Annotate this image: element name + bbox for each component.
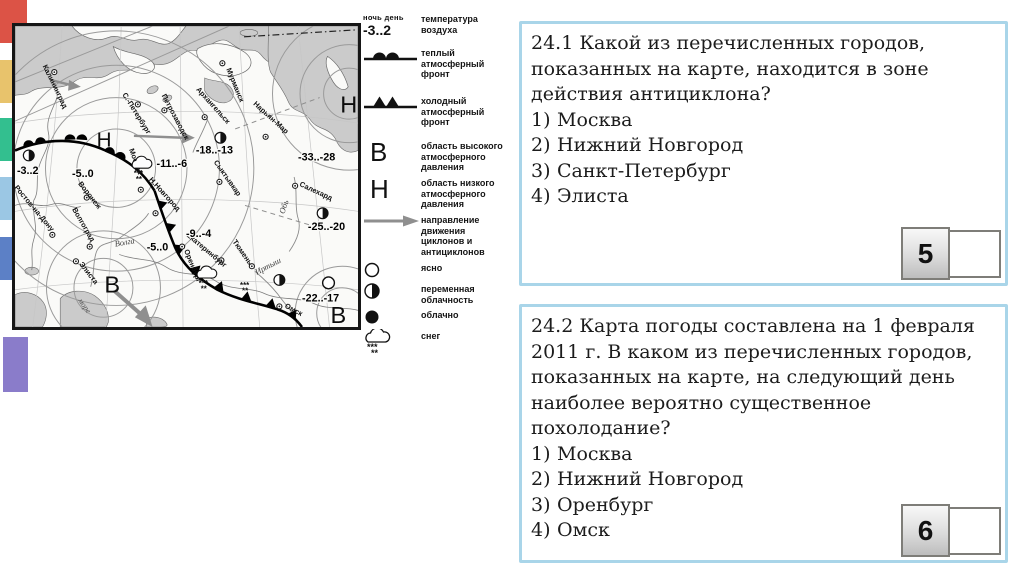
snow-symbol: ** — [201, 285, 208, 294]
decor-square — [3, 337, 28, 392]
pressure-letter: Н — [340, 91, 357, 117]
legend-label: холодныйатмосферныйфронт — [421, 95, 484, 128]
answer-option: 2)Нижний Новгород — [531, 133, 999, 159]
question-text-line: 24.2 Карта погоды составлена на 1 феврал… — [531, 314, 999, 340]
answer-option: 3)Санкт-Петербург — [531, 159, 999, 185]
option-text: Москва — [557, 109, 632, 131]
city-dot-center — [294, 185, 296, 187]
legend-row: теплыйатмосферныйфронт — [361, 47, 515, 87]
temp-sample: ночь день-3..2 — [361, 13, 421, 38]
city-dot-center — [155, 212, 157, 214]
city-dot-center — [219, 181, 221, 183]
legend-label: снег — [421, 329, 440, 342]
temperature-label: -25..-20 — [308, 221, 345, 233]
pressure-letter: В — [104, 272, 120, 298]
legend-label: облачно — [421, 308, 459, 321]
option-number: 2) — [531, 467, 557, 493]
legend-row: холодныйатмосферныйфронт — [361, 95, 515, 135]
city-dot-center — [140, 189, 142, 191]
option-text: Омск — [557, 519, 610, 541]
option-number: 4) — [531, 184, 557, 210]
option-text: Нижний Новгород — [557, 134, 743, 156]
temperature-label: -18..-13 — [196, 144, 233, 156]
answer-option: 4)Элиста — [531, 184, 999, 210]
question-text-line: действия антициклона? — [531, 82, 999, 108]
temperature-label: -9..-4 — [186, 228, 211, 240]
temperature-label: -5..0 — [147, 242, 169, 254]
pressure-letter: В — [330, 302, 346, 327]
high-pressure-letter: В — [361, 140, 421, 164]
answer-option: 1)Москва — [531, 442, 999, 468]
snow-symbol: ** — [242, 287, 249, 296]
legend-row: облачно — [361, 308, 515, 326]
legend-row: переменнаяоблачность — [361, 282, 515, 305]
option-number: 1) — [531, 108, 557, 134]
question-text-line: показанных на карте, на следующий день — [531, 365, 999, 391]
city-dot-center — [164, 109, 166, 111]
question-box-2: 24.2 Карта погоды составлена на 1 феврал… — [519, 304, 1008, 563]
option-number: 1) — [531, 442, 557, 468]
answer-pair-2: 6 — [901, 504, 1001, 557]
option-text: Москва — [557, 443, 632, 465]
clear-icon — [361, 261, 421, 279]
low-pressure-letter: Н — [361, 177, 421, 201]
city-dot-center — [278, 306, 280, 308]
question-1-content: 24.1 Какой из перечисленных городов,пока… — [522, 24, 1005, 210]
warm-front-icon — [361, 47, 421, 62]
question-text-line: 24.1 Какой из перечисленных городов, — [531, 31, 999, 57]
legend-label: направлениедвиженияциклонов иантициклоно… — [421, 214, 485, 257]
clear-symbol — [323, 277, 335, 289]
answer-option: 2)Нижний Новгород — [531, 467, 999, 493]
city-dot-center — [181, 246, 183, 248]
legend-label: область низкогоатмосферногодавления — [421, 177, 494, 210]
cold-front-icon — [361, 95, 421, 110]
cloudy-icon — [361, 308, 421, 326]
legend-label: область высокогоатмосферногодавления — [421, 140, 503, 173]
answer-blank-box — [950, 230, 1001, 278]
option-text: Нижний Новгород — [557, 468, 743, 490]
legend-label: температуравоздуха — [421, 13, 478, 35]
legend-row: Вобласть высокогоатмосферногодавления — [361, 140, 515, 174]
map-legend: ночь день-3..2температуравоздухатеплыйат… — [361, 13, 515, 360]
answer-blank-box — [950, 507, 1001, 555]
partly-cloudy-icon — [361, 282, 421, 300]
temperature-label: -11..-6 — [157, 158, 188, 170]
question-text-line: показанных на карте, находится в зоне — [531, 57, 999, 83]
snow-icon: ***** — [361, 329, 421, 357]
temperature-label: -3..2 — [17, 165, 39, 177]
svg-text:**: ** — [371, 348, 379, 357]
snow-symbol: ** — [136, 175, 143, 184]
option-number: 3) — [531, 159, 557, 185]
city-dot-center — [204, 116, 206, 118]
slide: КалининградС.-ПетербургПетрозаводскМурма… — [0, 0, 1024, 576]
answer-number-badge: 6 — [901, 504, 950, 557]
city-dot-center — [251, 265, 253, 267]
city-dot-center — [221, 62, 223, 64]
legend-row: ясно — [361, 261, 515, 279]
temperature-label: -5..0 — [72, 168, 94, 180]
option-text: Элиста — [557, 185, 629, 207]
legend-row: направлениедвиженияциклонов иантициклоно… — [361, 214, 515, 257]
answer-number-badge: 5 — [901, 227, 950, 280]
legend-row: Нобласть низкогоатмосферногодавления — [361, 177, 515, 211]
city-dot-center — [75, 260, 77, 262]
answer-option: 1)Москва — [531, 108, 999, 134]
legend-label: теплыйатмосферныйфронт — [421, 47, 484, 80]
legend-label: переменнаяоблачность — [421, 282, 475, 305]
option-number: 4) — [531, 518, 557, 544]
city-dot-center — [89, 246, 91, 248]
city-dot-center — [265, 136, 267, 138]
city-dot-center — [51, 234, 53, 236]
question-text-line: наиболее вероятно существенное — [531, 391, 999, 417]
option-number: 2) — [531, 133, 557, 159]
direction-arrow-icon — [361, 214, 421, 228]
question-text-line: 2011 г. В каком из перечисленных городов… — [531, 340, 999, 366]
weather-map: КалининградС.-ПетербургПетрозаводскМурма… — [12, 23, 361, 330]
temperature-label: -33..-28 — [298, 151, 335, 163]
legend-row: *****снег — [361, 329, 515, 357]
legend-row: ночь день-3..2температуравоздуха — [361, 13, 515, 38]
pressure-letter: Н — [97, 129, 112, 152]
legend-label: ясно — [421, 261, 442, 274]
option-text: Оренбург — [557, 494, 653, 516]
weather-map-svg: КалининградС.-ПетербургПетрозаводскМурма… — [15, 26, 358, 327]
option-text: Санкт-Петербург — [557, 160, 731, 182]
question-text-line: похолодание? — [531, 416, 999, 442]
option-number: 3) — [531, 493, 557, 519]
question-box-1: 24.1 Какой из перечисленных городов,пока… — [519, 21, 1008, 286]
answer-pair-1: 5 — [901, 227, 1001, 280]
